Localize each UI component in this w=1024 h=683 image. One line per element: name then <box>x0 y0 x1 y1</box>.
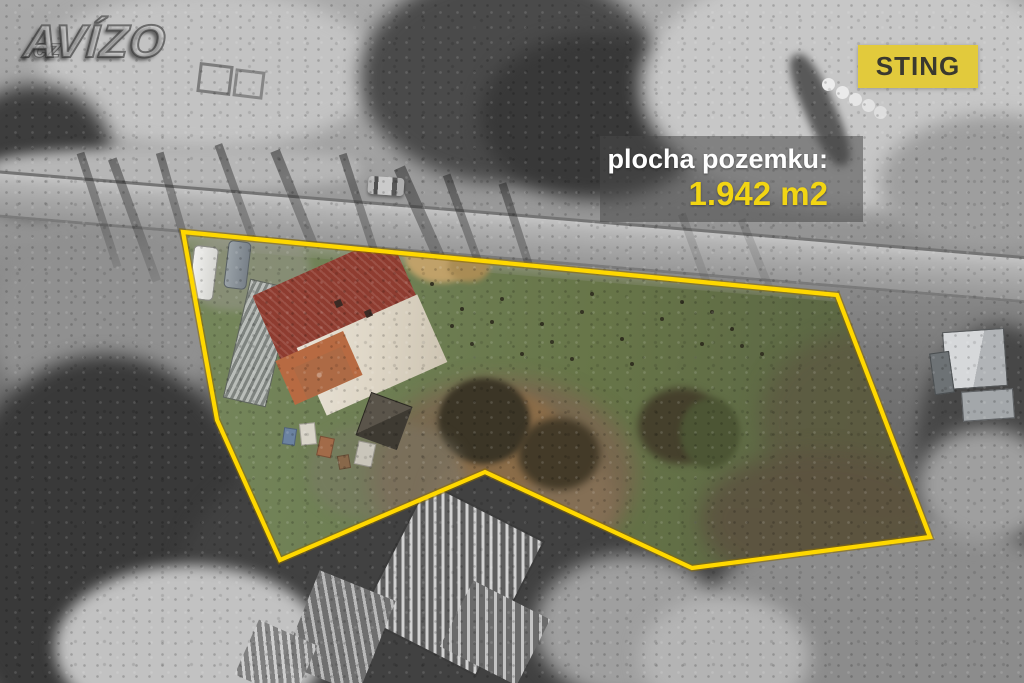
parcel-outline-line <box>183 232 930 568</box>
parcel-outline-halo <box>183 232 930 568</box>
area-info-box: plocha pozemku: 1.942 m2 <box>600 136 863 222</box>
aerial-photo: AVÍZO.cz STING plocha pozemku: 1.942 m2 <box>0 0 1024 683</box>
sting-brand-badge: STING <box>858 45 978 88</box>
area-label: plocha pozemku: <box>600 143 828 175</box>
parcel-outline <box>0 0 1024 683</box>
avizo-watermark-text: AVÍZO <box>22 14 168 68</box>
avizo-watermark: AVÍZO.cz <box>22 14 64 68</box>
area-value: 1.942 m2 <box>600 175 828 213</box>
